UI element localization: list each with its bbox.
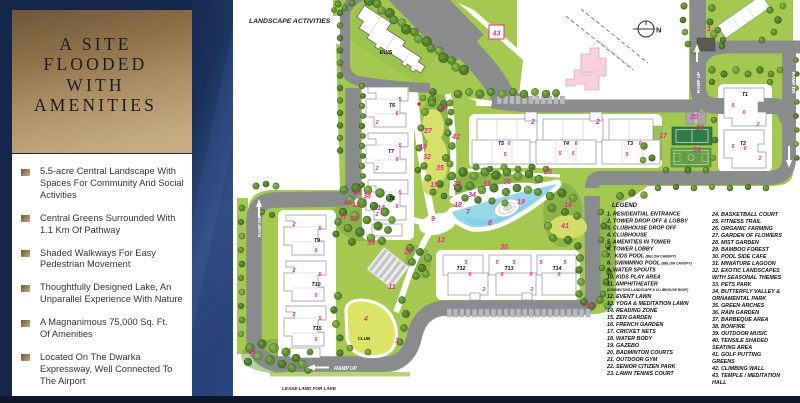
svg-text:40. TENSILE SHADED: 40. TENSILE SHADED <box>711 338 768 344</box>
svg-text:40: 40 <box>342 200 351 207</box>
svg-text:26. ORGANIC FARMING: 26. ORGANIC FARMING <box>711 226 774 232</box>
svg-text:8: 8 <box>488 220 492 227</box>
svg-text:12. EVENT LAWN: 12. EVENT LAWN <box>607 294 651 300</box>
svg-text:21: 21 <box>353 189 362 196</box>
svg-text:30: 30 <box>500 244 508 251</box>
svg-text:31. MINIATURE LAGOON: 31. MINIATURE LAGOON <box>712 261 776 267</box>
svg-text:T15: T15 <box>313 326 322 332</box>
svg-text:(CONNECTING LANDSCAPE & CLUBHO: (CONNECTING LANDSCAPE & CLUBHOUSE ROOF) <box>607 288 688 292</box>
svg-text:19. GAZEBO: 19. GAZEBO <box>607 343 640 349</box>
svg-text:37: 37 <box>339 214 348 221</box>
svg-text:43: 43 <box>492 31 501 38</box>
svg-text:24. BASKETBALL COURT: 24. BASKETBALL COURT <box>711 212 779 218</box>
svg-text:11: 11 <box>388 284 395 291</box>
svg-text:31: 31 <box>483 181 491 188</box>
svg-text:22. SENIOR CITIZEN PARK: 22. SENIOR CITIZEN PARK <box>606 364 677 370</box>
svg-text:T8: T8 <box>389 196 395 202</box>
svg-text:24: 24 <box>692 147 701 154</box>
svg-text:23: 23 <box>695 125 704 132</box>
svg-text:T10: T10 <box>312 282 321 288</box>
svg-text:T9: T9 <box>314 238 320 244</box>
svg-text:13: 13 <box>437 237 445 244</box>
svg-text:20: 20 <box>689 114 698 121</box>
svg-text:42: 42 <box>451 134 460 141</box>
svg-text:T12: T12 <box>457 266 466 272</box>
svg-text:6. TOWER LOBBY: 6. TOWER LOBBY <box>607 247 654 253</box>
svg-text:T4: T4 <box>563 141 569 147</box>
svg-text:WITH SEASONAL THEMES: WITH SEASONAL THEMES <box>712 275 781 281</box>
svg-text:LEGEND: LEGEND <box>612 203 638 209</box>
svg-text:LEASE LAND FOR LAKE: LEASE LAND FOR LAKE <box>282 386 337 391</box>
svg-text:7. KIDS POOL (BELOW CANOPY): 7. KIDS POOL (BELOW CANOPY) <box>607 254 677 260</box>
svg-text:42. CLIMBING WALL: 42. CLIMBING WALL <box>711 366 764 372</box>
svg-text:2: 2 <box>595 119 600 126</box>
svg-text:9. WATER SPOUTS: 9. WATER SPOUTS <box>607 268 656 274</box>
svg-text:15. ZEN GARDEN: 15. ZEN GARDEN <box>607 315 652 321</box>
svg-text:T6: T6 <box>389 103 395 109</box>
svg-text:34: 34 <box>468 192 476 199</box>
svg-text:29: 29 <box>452 181 461 188</box>
svg-text:20. BADMINTON COURTS: 20. BADMINTON COURTS <box>606 350 673 356</box>
svg-text:T3: T3 <box>627 141 633 147</box>
svg-text:19: 19 <box>517 199 525 206</box>
svg-text:36: 36 <box>503 179 511 186</box>
svg-text:18. WATER BODY: 18. WATER BODY <box>607 336 653 342</box>
svg-text:30. POOL SIDE CAFE: 30. POOL SIDE CAFE <box>712 254 767 260</box>
svg-text:4: 4 <box>363 316 368 323</box>
svg-text:16. FRENCH GARDEN: 16. FRENCH GARDEN <box>607 322 663 328</box>
svg-text:26: 26 <box>403 249 412 256</box>
svg-text:22: 22 <box>349 216 358 223</box>
svg-text:15: 15 <box>430 182 438 189</box>
svg-text:10: 10 <box>419 144 427 151</box>
svg-text:32. EXOTIC LANDSCAPES: 32. EXOTIC LANDSCAPES <box>712 268 780 274</box>
svg-text:29. BAMBOO FOREST: 29. BAMBOO FOREST <box>711 247 770 253</box>
svg-text:28: 28 <box>439 105 448 112</box>
svg-text:32: 32 <box>423 154 431 161</box>
svg-text:16: 16 <box>564 202 572 209</box>
svg-text:RAMP DN: RAMP DN <box>791 72 796 94</box>
svg-text:CLUB: CLUB <box>358 336 371 341</box>
svg-text:38. BONFIRE: 38. BONFIRE <box>712 324 746 330</box>
svg-text:2. TOWER DROP OFF & LOBBY: 2. TOWER DROP OFF & LOBBY <box>606 219 688 225</box>
svg-text:3: 3 <box>395 338 399 345</box>
svg-text:SEATING AREA: SEATING AREA <box>712 345 752 351</box>
svg-text:35. GREEN ARCHES: 35. GREEN ARCHES <box>712 303 765 309</box>
svg-text:ORNAMENTAL PARK: ORNAMENTAL PARK <box>712 296 767 302</box>
svg-text:4. CLUBHOUSE: 4. CLUBHOUSE <box>606 233 648 239</box>
svg-text:34. BUTTERFLY VALLEY &: 34. BUTTERFLY VALLEY & <box>712 289 780 295</box>
svg-text:3. CLUBHOUSE DROP OFF: 3. CLUBHOUSE DROP OFF <box>607 226 677 232</box>
svg-text:14: 14 <box>377 205 385 212</box>
svg-text:17. CRICKET NETS: 17. CRICKET NETS <box>607 329 656 335</box>
svg-text:18: 18 <box>454 202 462 209</box>
svg-text:36. RAIN GARDEN: 36. RAIN GARDEN <box>712 310 759 316</box>
svg-text:25. FITNESS TRAIL: 25. FITNESS TRAIL <box>711 219 761 225</box>
svg-text:HALL: HALL <box>712 380 726 386</box>
svg-text:EWS: EWS <box>380 50 393 56</box>
svg-text:LANDSCAPE ACTIVITIES: LANDSCAPE ACTIVITIES <box>249 18 331 25</box>
svg-text:12: 12 <box>352 202 360 209</box>
svg-text:33: 33 <box>585 303 593 310</box>
svg-text:33: 33 <box>248 349 256 356</box>
svg-text:17: 17 <box>659 133 668 140</box>
svg-text:23. LAWN TENNIS COURT: 23. LAWN TENNIS COURT <box>606 371 674 377</box>
svg-text:38: 38 <box>363 193 371 200</box>
svg-text:28. MIST GARDEN: 28. MIST GARDEN <box>711 240 759 246</box>
svg-text:33. PETS PARK: 33. PETS PARK <box>712 282 753 288</box>
svg-text:5. AMENITIES IN TOWER: 5. AMENITIES IN TOWER <box>607 240 671 246</box>
svg-text:RAMP UP: RAMP UP <box>696 72 701 93</box>
svg-text:N: N <box>656 26 661 35</box>
svg-text:41: 41 <box>560 223 569 230</box>
svg-text:2: 2 <box>530 119 535 126</box>
svg-text:39: 39 <box>367 240 375 247</box>
svg-text:10. KIDS PLAY AREA: 10. KIDS PLAY AREA <box>607 275 661 281</box>
svg-text:35: 35 <box>436 165 444 172</box>
svg-text:9: 9 <box>431 216 435 223</box>
svg-text:27. GARDEN OF FLOWERS: 27. GARDEN OF FLOWERS <box>711 233 782 239</box>
svg-text:37. BARBEQUE AREA: 37. BARBEQUE AREA <box>712 317 769 323</box>
svg-text:43. TEMPLE / MEDITATION: 43. TEMPLE / MEDITATION <box>711 373 780 379</box>
svg-text:41. GOLF PUTTING: 41. GOLF PUTTING <box>711 352 762 358</box>
svg-text:39. OUTDOOR MUSIC: 39. OUTDOOR MUSIC <box>712 331 768 337</box>
svg-text:11. AMPHITHEATER: 11. AMPHITHEATER <box>607 282 658 288</box>
svg-text:8. SWIMMING POOL (BELOW CANOP: 8. SWIMMING POOL (BELOW CANOPY) <box>607 261 693 267</box>
svg-text:1. RESIDENTIAL ENTRANCE: 1. RESIDENTIAL ENTRANCE <box>607 212 681 218</box>
svg-text:T5: T5 <box>498 141 504 147</box>
svg-text:25: 25 <box>543 169 552 176</box>
svg-text:T1: T1 <box>742 92 748 98</box>
svg-text:RAMP UP: RAMP UP <box>334 366 358 372</box>
svg-text:1: 1 <box>707 26 711 33</box>
svg-text:13. YOGA & MEDITATION LAWN: 13. YOGA & MEDITATION LAWN <box>607 301 689 307</box>
svg-text:T13: T13 <box>505 266 514 272</box>
svg-text:GREENS: GREENS <box>712 359 735 365</box>
svg-text:27: 27 <box>423 128 433 135</box>
svg-text:21. OUTDOOR GYM: 21. OUTDOOR GYM <box>606 357 658 363</box>
svg-text:RAMP DN: RAMP DN <box>257 217 262 237</box>
svg-text:14. READING ZONE: 14. READING ZONE <box>607 308 658 314</box>
